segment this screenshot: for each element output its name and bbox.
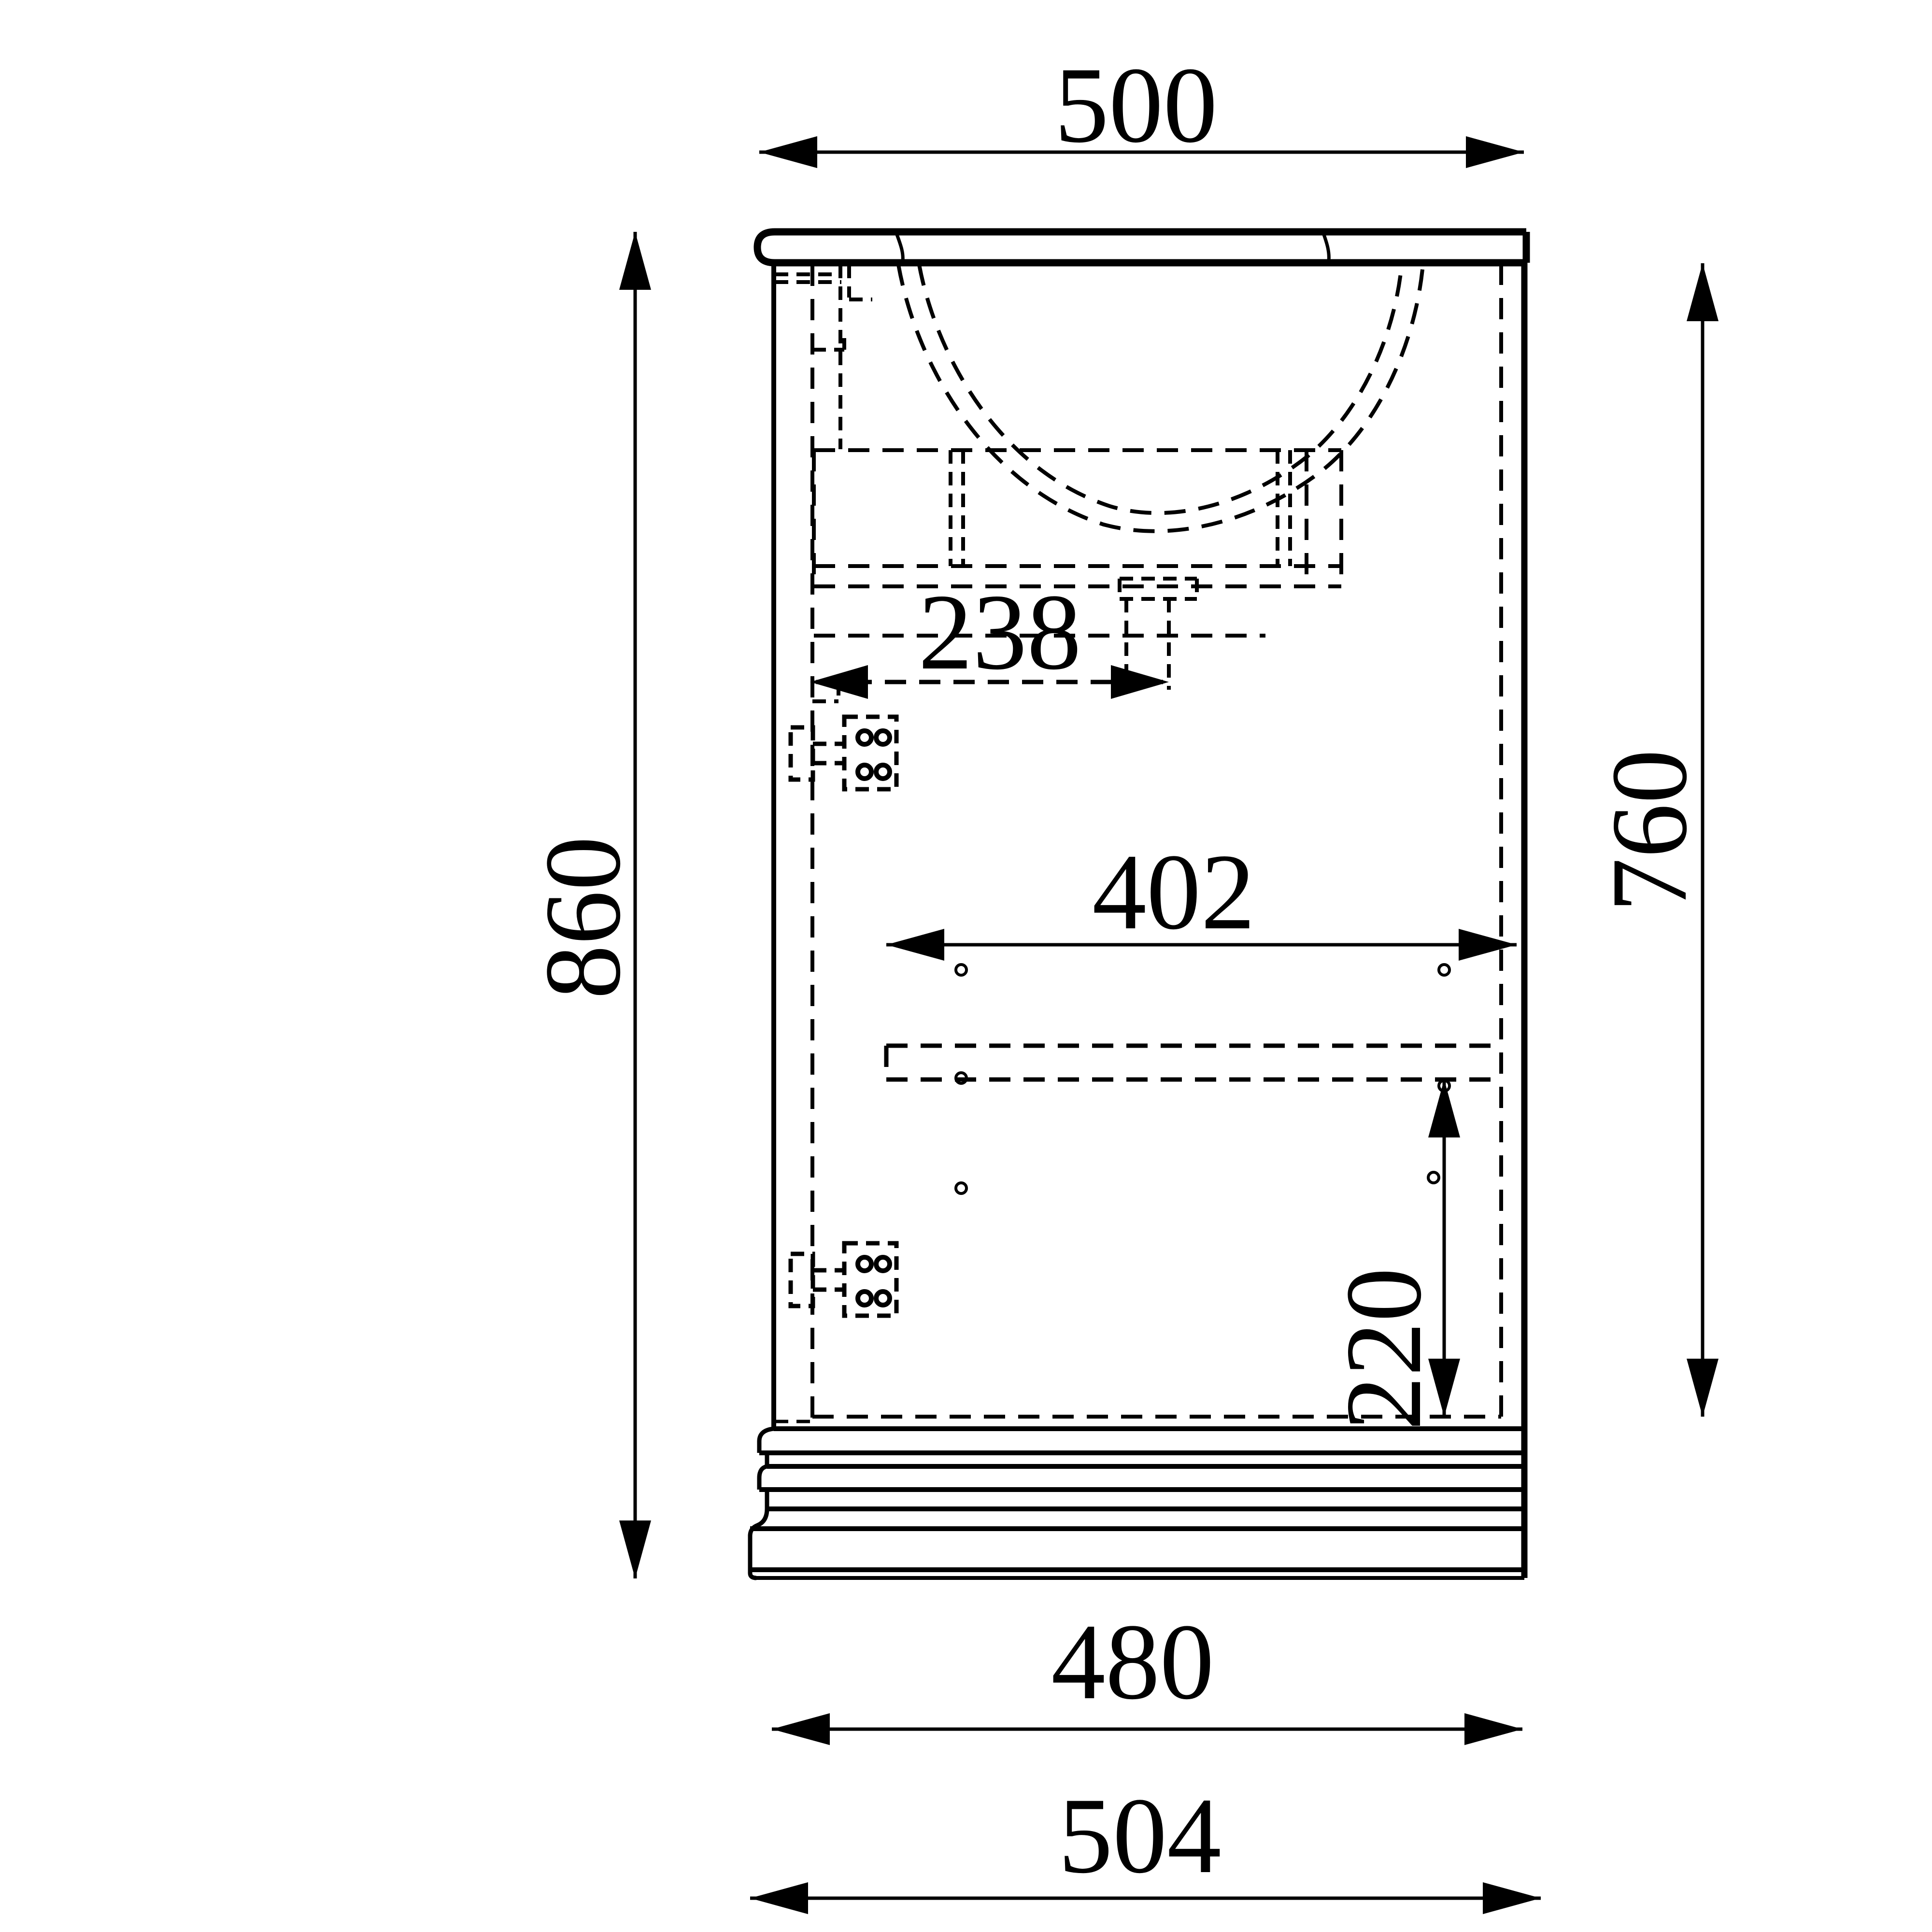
arrowhead-right-icon	[1111, 665, 1169, 699]
arrowhead-up-icon	[1687, 263, 1719, 321]
bowl-outer-curve	[898, 265, 1423, 531]
arrowhead-right-icon	[1483, 1882, 1541, 1914]
hinge-arms	[813, 1270, 844, 1290]
countertop-profile	[757, 232, 1526, 263]
dim-plinth-width-label: 504	[1058, 1775, 1222, 1896]
dim-overall-height-label: 860	[522, 836, 643, 999]
plinth-band-lines	[750, 1429, 1524, 1570]
shelf-hidden-outline	[886, 1046, 1501, 1080]
shelf-pin-hole-icon	[1428, 1172, 1439, 1183]
arrowhead-down-icon	[1687, 1359, 1719, 1417]
arrowhead-right-icon	[1459, 929, 1517, 961]
arrowhead-right-icon	[1466, 136, 1524, 168]
arrowhead-up-icon	[1428, 1080, 1460, 1137]
shelf	[886, 1046, 1501, 1080]
hinge-bottom	[791, 1243, 896, 1316]
countertop	[757, 232, 1526, 263]
dim-drain-offset-label: 238	[918, 571, 1081, 692]
countertop-joint-left	[896, 233, 903, 261]
dim-top-width: 500	[759, 44, 1524, 168]
hinge-screw-icon	[858, 765, 871, 779]
hinge-screw-icon	[876, 765, 890, 779]
top-rail-hidden-edges	[775, 274, 841, 282]
dim-bottom-clearance: 220	[1323, 1080, 1460, 1431]
hinge-arms	[813, 744, 844, 763]
arrowhead-up-icon	[619, 232, 651, 290]
plinth	[750, 1429, 1524, 1578]
technical-drawing-page: 500 860 760 238 402 220 48	[0, 0, 1932, 1932]
frame-inner-ribs	[951, 450, 1290, 566]
shelf-pin-hole-icon	[956, 965, 966, 975]
dim-overall-height: 860	[522, 232, 651, 1578]
hinge-screw-icon	[858, 1257, 871, 1271]
arrowhead-left-icon	[759, 136, 817, 168]
hinge-screw-icon	[858, 1292, 871, 1305]
vanity-side-section-drawing: 500 860 760 238 402 220 48	[0, 0, 1932, 1932]
dim-carcass-height: 760	[1589, 263, 1719, 1417]
dim-carcass-width: 480	[772, 1601, 1522, 1745]
dim-carcass-width-label: 480	[1051, 1601, 1214, 1722]
dim-bottom-clearance-label: 220	[1323, 1267, 1444, 1431]
dim-top-width-label: 500	[1054, 44, 1218, 165]
hinge-plate	[791, 1254, 813, 1306]
hinge-top	[791, 717, 896, 789]
arrowhead-left-icon	[886, 929, 944, 961]
hinge-plate	[791, 727, 813, 780]
hinge-screw-icon	[876, 1257, 890, 1271]
overflow-channel	[840, 265, 872, 449]
dim-interior-width-label: 402	[1092, 831, 1255, 952]
drain-flange	[1120, 579, 1197, 599]
hinge-screw-icon	[858, 731, 871, 744]
arrowhead-right-icon	[1464, 1713, 1522, 1745]
basin-mounting-frame	[814, 450, 1341, 586]
shelf-pin-hole-icon	[1439, 965, 1449, 975]
bowl-inner-curve	[919, 265, 1402, 513]
arrowhead-down-icon	[619, 1520, 651, 1578]
countertop-joint-right	[1323, 233, 1329, 261]
hinge-screw-icon	[876, 731, 890, 744]
dim-plinth-width: 504	[750, 1775, 1541, 1914]
wash-basin	[814, 265, 1423, 690]
hinge-screw-icon	[876, 1292, 890, 1305]
arrowhead-left-icon	[750, 1882, 808, 1914]
shelf-pin-hole-icon	[956, 1183, 966, 1193]
arrowhead-left-icon	[772, 1713, 830, 1745]
dim-interior-width: 402	[886, 831, 1517, 961]
dim-carcass-height-label: 760	[1589, 749, 1709, 912]
